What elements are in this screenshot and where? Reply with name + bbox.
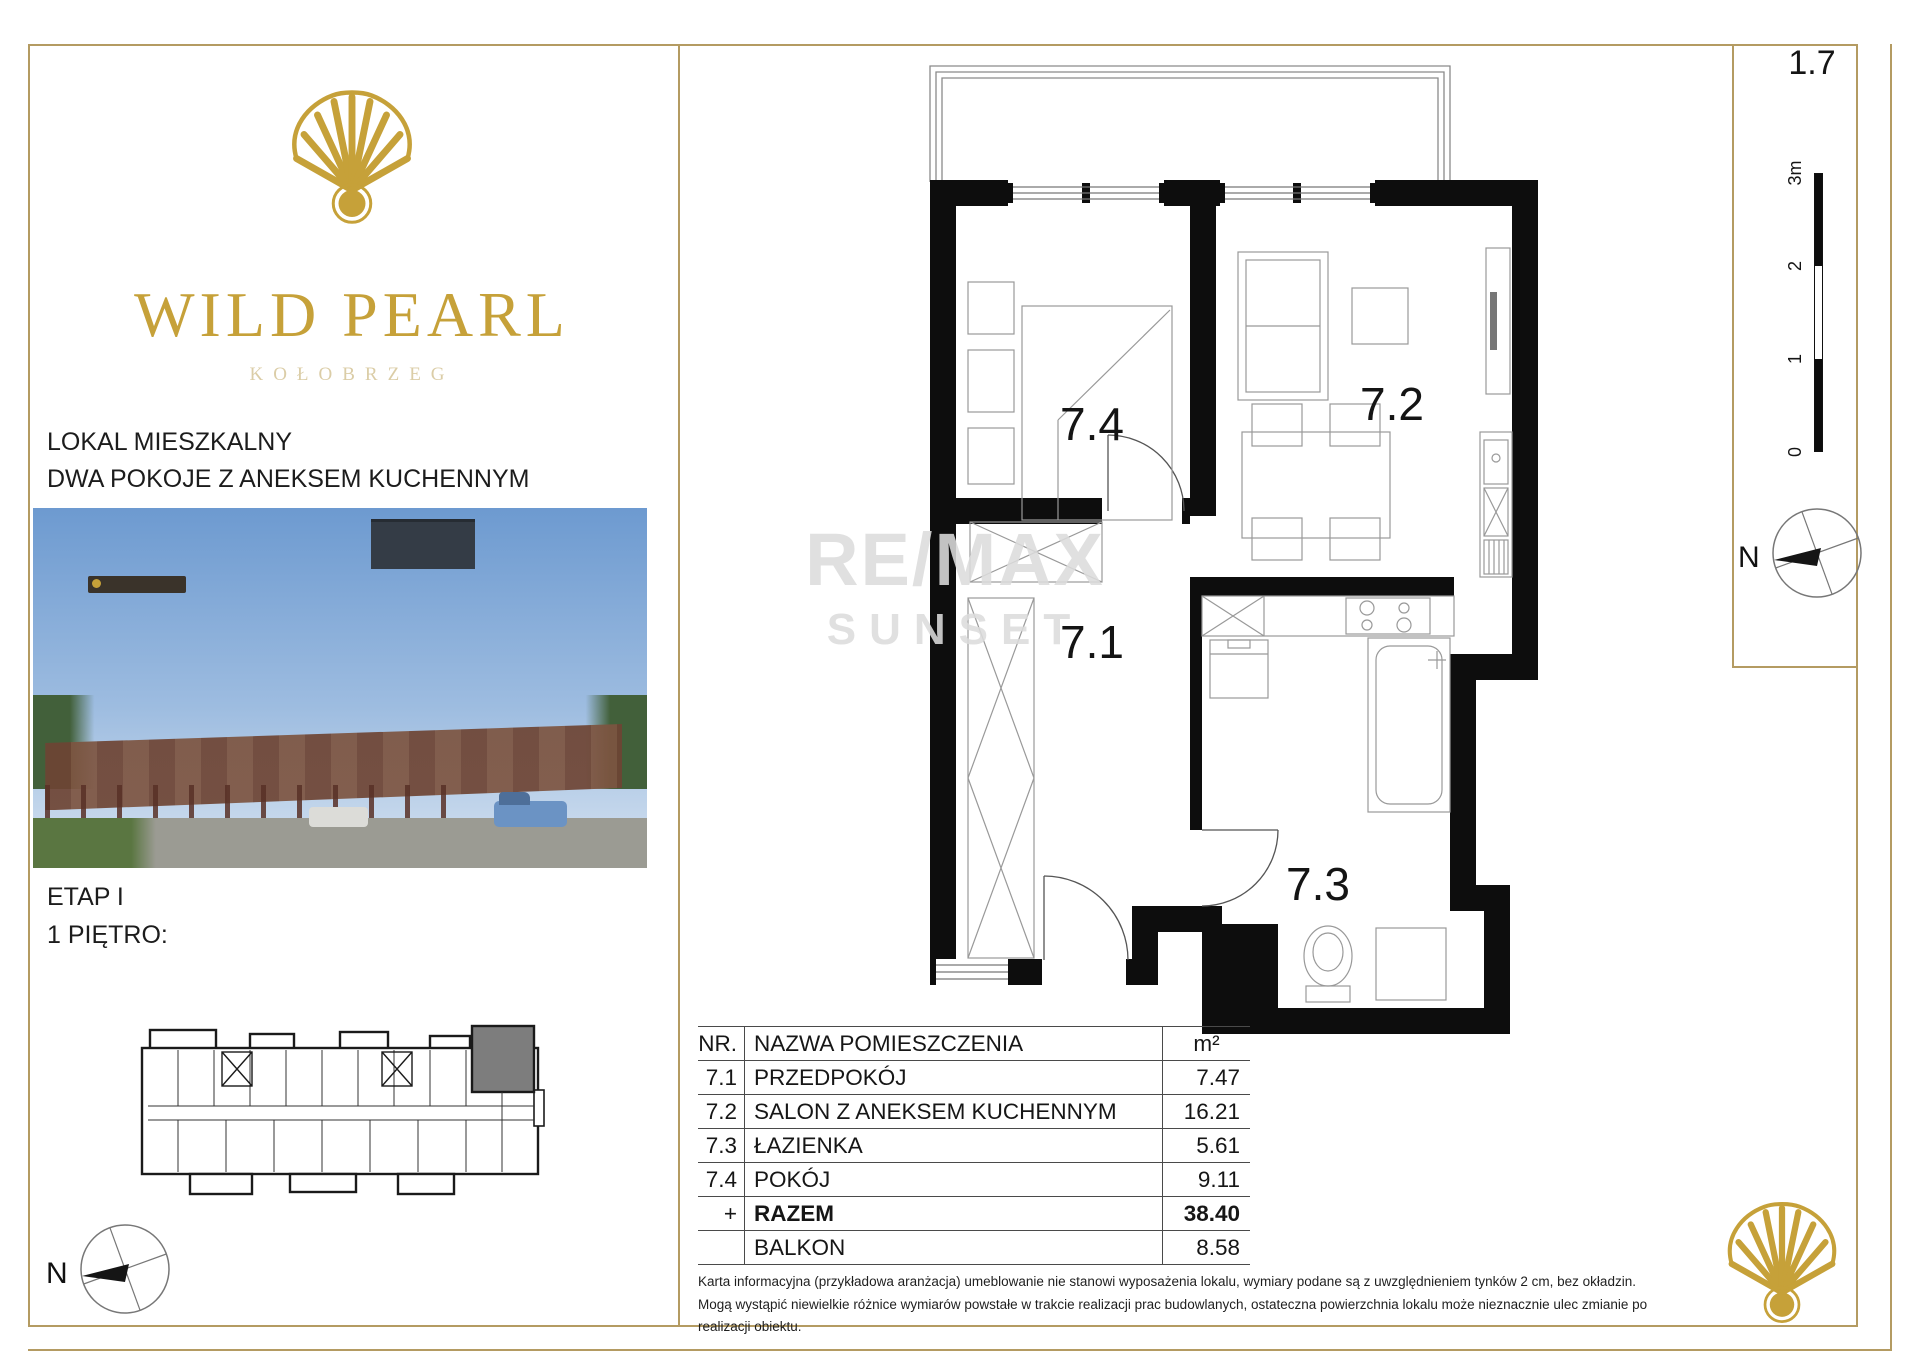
- disclaimer-line1: Karta informacyjna (przykładowa aranżacj…: [698, 1271, 1690, 1294]
- photo-building-sign: [88, 576, 186, 592]
- row-name: POKÓJ: [744, 1163, 1162, 1196]
- listing-subtitle-line: DWA POKOJE Z ANEKSEM KUCHENNYM: [47, 461, 529, 498]
- room-label-7-3: 7.3: [1286, 858, 1350, 910]
- left-panel-divider: [678, 44, 680, 1325]
- corner-shell-icon: [1714, 1200, 1850, 1325]
- room-label-7-2: 7.2: [1360, 378, 1424, 430]
- highlighted-unit: [472, 1026, 534, 1092]
- balcony-outline: [930, 66, 1450, 182]
- row-area: 7.47: [1162, 1061, 1250, 1094]
- scale-bar: [1814, 173, 1823, 452]
- watermark-line1: RE/MAX: [805, 518, 1105, 601]
- scale-tick-3m: 3m: [1785, 155, 1803, 191]
- table-row: 7.3 ŁAZIENKA 5.61: [698, 1129, 1250, 1163]
- balcony-area: 8.58: [1162, 1231, 1250, 1264]
- page-outer-border-right: [1890, 44, 1892, 1351]
- tv: [1490, 292, 1497, 350]
- listing-title: LOKAL MIESZKALNY DWA POKOJE Z ANEKSEM KU…: [47, 424, 529, 498]
- balcony-nr: [698, 1231, 744, 1264]
- table-row: 7.2 SALON Z ANEKSEM KUCHENNYM 16.21: [698, 1095, 1250, 1129]
- plan-compass-icon: N: [1732, 503, 1872, 603]
- overview-compass-icon: N: [40, 1219, 180, 1319]
- table-total-row: + RAZEM 38.40: [698, 1197, 1250, 1231]
- floor-overview-plan: [130, 1020, 550, 1210]
- scale-tick-1: 1: [1785, 341, 1803, 377]
- page-outer-border-bottom: [28, 1349, 1892, 1351]
- table-header-row: NR. NAZWA POMIESZCZENIA m²: [698, 1026, 1250, 1061]
- brand-city: KOŁOBRZEG: [48, 364, 656, 386]
- photo-car-blue: [494, 801, 568, 826]
- row-name: SALON Z ANEKSEM KUCHENNYM: [744, 1095, 1162, 1128]
- scale-segment-3-2: [1815, 174, 1822, 266]
- row-nr: 7.2: [698, 1095, 744, 1128]
- floor-label: 1 PIĘTRO:: [47, 916, 168, 954]
- disclaimer: Karta informacyjna (przykładowa aranżacj…: [698, 1271, 1690, 1339]
- row-name: ŁAZIENKA: [744, 1129, 1162, 1162]
- header-name: NAZWA POMIESZCZENIA: [744, 1027, 1162, 1060]
- plan-number: 1.7: [1750, 44, 1874, 83]
- brand-shell-icon: [277, 88, 427, 226]
- row-nr: 7.3: [698, 1129, 744, 1162]
- apartment-floorplan: 7.4 7.2 7.1 7.3 RE/MAX SUNSET: [740, 40, 1590, 1050]
- header-unit: m²: [1162, 1027, 1250, 1060]
- disclaimer-line2: Mogą wystąpić niewielkie różnice wymiaró…: [698, 1294, 1690, 1339]
- scale-tick-2: 2: [1785, 248, 1803, 284]
- stage-label: ETAP I: [47, 878, 168, 916]
- row-area: 16.21: [1162, 1095, 1250, 1128]
- total-nr: +: [698, 1197, 744, 1230]
- total-name: RAZEM: [744, 1197, 1162, 1230]
- info-card-page: { "brand": { "name": "WILD PEARL", "city…: [0, 0, 1920, 1357]
- area-table: NR. NAZWA POMIESZCZENIA m² 7.1 PRZEDPOKÓ…: [698, 1026, 1250, 1265]
- photo-fence: [45, 785, 475, 817]
- watermark-line2: SUNSET: [827, 605, 1083, 654]
- row-area: 9.11: [1162, 1163, 1250, 1196]
- row-nr: 7.1: [698, 1061, 744, 1094]
- compass-north-label: N: [46, 1257, 68, 1290]
- scale-segment-2-1: [1815, 266, 1822, 359]
- balcony-name: BALKON: [744, 1231, 1162, 1264]
- header-nr: NR.: [698, 1027, 744, 1060]
- compass-north-label: N: [1738, 541, 1760, 574]
- row-area: 5.61: [1162, 1129, 1250, 1162]
- row-name: PRZEDPOKÓJ: [744, 1061, 1162, 1094]
- room-label-7-4: 7.4: [1060, 398, 1124, 450]
- listing-type-line: LOKAL MIESZKALNY: [47, 424, 529, 461]
- table-balcony-row: BALKON 8.58: [698, 1231, 1250, 1265]
- scale-segment-1-0: [1815, 359, 1822, 451]
- stage-block: ETAP I 1 PIĘTRO:: [47, 878, 168, 954]
- scale-tick-0: 0: [1785, 434, 1803, 470]
- table-row: 7.4 POKÓJ 9.11: [698, 1163, 1250, 1197]
- total-area: 38.40: [1162, 1197, 1250, 1230]
- row-nr: 7.4: [698, 1163, 744, 1196]
- brand-name: WILD PEARL: [48, 278, 656, 352]
- photo-car-white: [309, 807, 367, 827]
- table-row: 7.1 PRZEDPOKÓJ 7.47: [698, 1061, 1250, 1095]
- building-photo: [33, 508, 647, 868]
